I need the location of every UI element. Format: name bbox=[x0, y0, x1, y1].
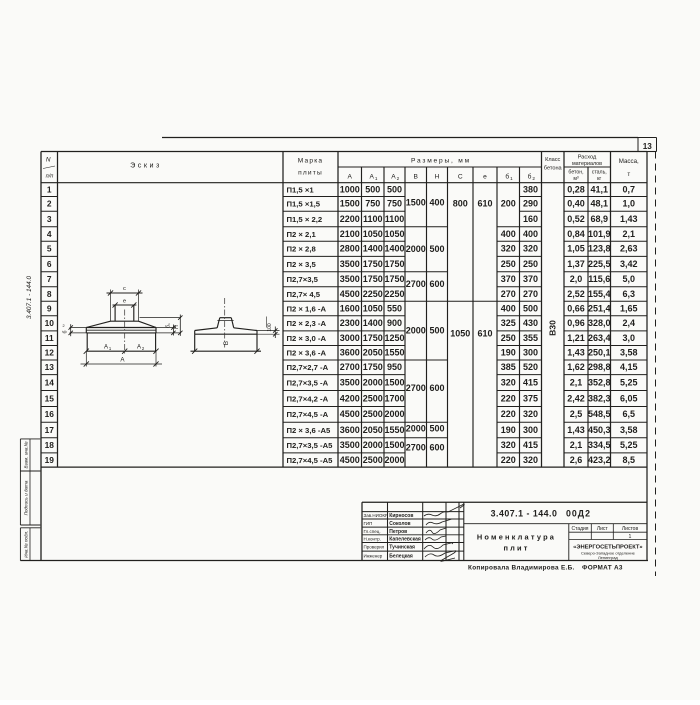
svg-text:2200: 2200 bbox=[340, 214, 360, 224]
svg-text:4500: 4500 bbox=[340, 409, 360, 419]
svg-text:100: 100 bbox=[267, 323, 273, 332]
svg-text:3,58: 3,58 bbox=[620, 425, 638, 435]
svg-text:8,5: 8,5 bbox=[622, 455, 635, 465]
svg-text:бетона: бетона bbox=[544, 166, 563, 172]
svg-text:Белецкая: Белецкая bbox=[389, 554, 413, 560]
svg-text:300: 300 bbox=[523, 348, 538, 358]
svg-text:2,1: 2,1 bbox=[622, 229, 635, 239]
svg-text:334,5: 334,5 bbox=[588, 440, 611, 450]
svg-text:270: 270 bbox=[501, 289, 516, 299]
svg-text:П2 × 3,0 -А: П2 × 3,0 -А bbox=[287, 334, 327, 343]
svg-text:5,25: 5,25 bbox=[620, 440, 638, 450]
svg-text:3500: 3500 bbox=[340, 274, 360, 284]
svg-text:Масса,: Масса, bbox=[619, 158, 639, 165]
svg-text:П2,7×4,5 -А5: П2,7×4,5 -А5 bbox=[287, 456, 334, 465]
svg-text:548,5: 548,5 bbox=[588, 409, 611, 419]
svg-text:5,25: 5,25 bbox=[620, 377, 638, 387]
svg-text:1,43: 1,43 bbox=[620, 214, 638, 224]
svg-text:1: 1 bbox=[47, 184, 52, 194]
svg-text:500: 500 bbox=[365, 184, 380, 194]
svg-text:423,2: 423,2 bbox=[588, 455, 611, 465]
svg-text:Зав.НИОКР: Зав.НИОКР bbox=[364, 513, 388, 518]
svg-text:П2 × 3,5: П2 × 3,5 bbox=[287, 260, 317, 269]
svg-text:2: 2 bbox=[47, 199, 52, 209]
svg-text:1,0: 1,0 bbox=[622, 199, 635, 209]
svg-text:П2,7×3,5 -А: П2,7×3,5 -А bbox=[287, 378, 329, 387]
svg-text:610: 610 bbox=[477, 329, 492, 339]
svg-text:18: 18 bbox=[45, 440, 55, 450]
svg-text:ГИП: ГИП bbox=[364, 521, 373, 526]
svg-text:2: 2 bbox=[532, 176, 535, 181]
svg-text:2000: 2000 bbox=[363, 440, 383, 450]
svg-text:500: 500 bbox=[429, 325, 444, 335]
svg-text:Тучинская: Тучинская bbox=[389, 545, 415, 551]
svg-text:б₁: б₁ bbox=[166, 323, 172, 328]
svg-text:сталь,: сталь, bbox=[592, 170, 607, 176]
svg-text:115,6: 115,6 bbox=[588, 274, 610, 284]
svg-text:П2 × 3,6 -А5: П2 × 3,6 -А5 bbox=[287, 426, 331, 435]
svg-text:00Д2: 00Д2 bbox=[566, 509, 591, 519]
svg-text:325: 325 bbox=[501, 318, 516, 328]
svg-text:2,5: 2,5 bbox=[570, 409, 583, 419]
svg-text:1,37: 1,37 bbox=[567, 259, 585, 269]
svg-text:кг: кг bbox=[597, 176, 601, 182]
svg-text:Взам. инв.№: Взам. инв.№ bbox=[24, 441, 29, 468]
svg-text:3.407.1 - 144.0: 3.407.1 - 144.0 bbox=[491, 509, 558, 519]
svg-text:550: 550 bbox=[387, 303, 402, 313]
svg-text:П2 × 1,6 -А: П2 × 1,6 -А bbox=[287, 304, 327, 313]
svg-text:320: 320 bbox=[523, 244, 538, 254]
svg-text:Капелевская: Капелевская bbox=[389, 537, 421, 543]
svg-text:200: 200 bbox=[501, 199, 516, 209]
svg-text:б: б bbox=[528, 173, 532, 181]
svg-text:3.407.1 - 144.0: 3.407.1 - 144.0 bbox=[26, 276, 33, 319]
svg-text:2700: 2700 bbox=[406, 442, 426, 452]
svg-text:380: 380 bbox=[523, 184, 538, 194]
svg-text:П2 × 2,3 -А: П2 × 2,3 -А bbox=[287, 319, 327, 328]
svg-text:2,63: 2,63 bbox=[620, 244, 638, 254]
svg-text:бетон,: бетон, bbox=[568, 170, 583, 176]
svg-text:Инженер: Инженер bbox=[364, 554, 383, 559]
svg-text:1750: 1750 bbox=[363, 259, 383, 269]
svg-text:П2 × 2,1: П2 × 2,1 bbox=[287, 230, 317, 239]
svg-text:А: А bbox=[370, 174, 375, 181]
svg-text:370: 370 bbox=[523, 274, 538, 284]
svg-text:2250: 2250 bbox=[363, 289, 383, 299]
svg-text:2,1: 2,1 bbox=[570, 377, 583, 387]
svg-text:П2,7×4,2 -А: П2,7×4,2 -А bbox=[287, 394, 329, 403]
svg-text:3500: 3500 bbox=[340, 259, 360, 269]
svg-text:2000: 2000 bbox=[363, 377, 383, 387]
svg-text:Подпись и дата: Подпись и дата bbox=[24, 480, 29, 515]
svg-text:320: 320 bbox=[523, 455, 538, 465]
svg-text:250: 250 bbox=[523, 259, 538, 269]
svg-text:Лист: Лист bbox=[597, 526, 609, 532]
svg-text:220: 220 bbox=[501, 393, 516, 403]
svg-text:Листов: Листов bbox=[622, 526, 639, 532]
svg-text:Гл.спец.: Гл.спец. bbox=[364, 529, 381, 534]
svg-text:1500: 1500 bbox=[406, 197, 426, 207]
svg-text:385: 385 bbox=[501, 362, 516, 372]
svg-text:2300: 2300 bbox=[340, 318, 360, 328]
svg-text:750: 750 bbox=[365, 199, 380, 209]
svg-text:6,5: 6,5 bbox=[622, 409, 635, 419]
svg-text:е: е bbox=[483, 174, 487, 181]
svg-text:7: 7 bbox=[47, 274, 52, 284]
svg-text:1400: 1400 bbox=[363, 244, 383, 254]
svg-text:600: 600 bbox=[429, 383, 444, 393]
svg-text:5,0: 5,0 bbox=[622, 274, 635, 284]
svg-text:370: 370 bbox=[501, 274, 516, 284]
svg-text:2,52: 2,52 bbox=[567, 289, 585, 299]
svg-text:123,8: 123,8 bbox=[588, 244, 611, 254]
svg-text:10: 10 bbox=[45, 318, 55, 328]
svg-text:4200: 4200 bbox=[340, 393, 360, 403]
svg-text:6,3: 6,3 bbox=[622, 289, 635, 299]
svg-text:16: 16 bbox=[45, 409, 55, 419]
svg-text:2,4: 2,4 bbox=[622, 318, 635, 328]
svg-text:П2,7×4,5 -А: П2,7×4,5 -А bbox=[287, 410, 329, 419]
svg-text:Размеры, мм: Размеры, мм bbox=[411, 158, 471, 165]
svg-text:1750: 1750 bbox=[363, 333, 383, 343]
svg-text:48,1: 48,1 bbox=[590, 199, 608, 209]
svg-text:П1,5 ×1: П1,5 ×1 bbox=[287, 185, 315, 194]
svg-text:8: 8 bbox=[47, 289, 52, 299]
svg-text:320: 320 bbox=[501, 440, 516, 450]
svg-text:3,58: 3,58 bbox=[620, 348, 638, 358]
svg-text:б: б bbox=[505, 173, 509, 181]
svg-text:Класс: Класс bbox=[545, 157, 560, 163]
svg-text:250: 250 bbox=[501, 259, 516, 269]
svg-text:Н.контр.: Н.контр. bbox=[364, 537, 381, 542]
svg-text:2,1: 2,1 bbox=[570, 440, 583, 450]
svg-text:плиты: плиты bbox=[298, 170, 323, 177]
svg-text:500: 500 bbox=[429, 424, 444, 434]
svg-text:9: 9 bbox=[47, 303, 52, 313]
svg-text:с: с bbox=[123, 286, 126, 292]
svg-text:1750: 1750 bbox=[363, 362, 383, 372]
svg-text:2500: 2500 bbox=[363, 455, 383, 465]
svg-text:3: 3 bbox=[47, 214, 52, 224]
svg-text:П1,5 × 2,2: П1,5 × 2,2 bbox=[287, 215, 323, 224]
svg-text:2500: 2500 bbox=[363, 393, 383, 403]
svg-text:220: 220 bbox=[501, 455, 516, 465]
svg-text:2050: 2050 bbox=[363, 425, 383, 435]
svg-text:1550: 1550 bbox=[384, 425, 404, 435]
svg-text:1,62: 1,62 bbox=[567, 362, 585, 372]
svg-text:400: 400 bbox=[501, 303, 516, 313]
svg-text:800: 800 bbox=[453, 199, 468, 209]
svg-text:263,4: 263,4 bbox=[588, 333, 611, 343]
svg-text:Н: Н bbox=[435, 174, 440, 181]
svg-text:13: 13 bbox=[643, 142, 653, 151]
svg-text:1750: 1750 bbox=[384, 274, 404, 284]
svg-text:3600: 3600 bbox=[340, 348, 360, 358]
svg-text:Копировала Владимирова Е.Б.: Копировала Владимирова Е.Б. bbox=[468, 564, 575, 571]
svg-text:2000: 2000 bbox=[406, 244, 426, 254]
svg-text:160: 160 bbox=[523, 214, 538, 224]
svg-text:2: 2 bbox=[62, 324, 64, 328]
svg-text:0,7: 0,7 bbox=[622, 184, 635, 194]
svg-text:П2,7×3,5 -А5: П2,7×3,5 -А5 bbox=[287, 441, 334, 450]
svg-text:355: 355 bbox=[523, 333, 538, 343]
svg-text:68,9: 68,9 bbox=[590, 214, 608, 224]
svg-text:250,1: 250,1 bbox=[588, 348, 611, 358]
svg-text:1,43: 1,43 bbox=[567, 425, 585, 435]
svg-text:0,84: 0,84 bbox=[567, 229, 585, 239]
svg-text:1000: 1000 bbox=[340, 184, 360, 194]
svg-text:4,15: 4,15 bbox=[620, 362, 638, 372]
svg-text:4: 4 bbox=[47, 229, 52, 239]
svg-text:плит: плит bbox=[503, 544, 529, 553]
svg-text:12: 12 bbox=[45, 348, 55, 358]
svg-text:0,52: 0,52 bbox=[567, 214, 585, 224]
svg-text:1: 1 bbox=[375, 176, 378, 181]
svg-text:1,21: 1,21 bbox=[567, 333, 585, 343]
svg-text:190: 190 bbox=[501, 425, 516, 435]
svg-text:2700: 2700 bbox=[406, 279, 426, 289]
svg-text:2: 2 bbox=[397, 176, 400, 181]
svg-text:600: 600 bbox=[429, 279, 444, 289]
svg-text:6,05: 6,05 bbox=[620, 393, 638, 403]
svg-text:2500: 2500 bbox=[363, 409, 383, 419]
svg-text:П2 × 2,8: П2 × 2,8 bbox=[287, 245, 317, 254]
svg-text:1600: 1600 bbox=[340, 303, 360, 313]
svg-text:300: 300 bbox=[523, 425, 538, 435]
svg-text:400: 400 bbox=[429, 197, 444, 207]
svg-text:т: т bbox=[627, 171, 630, 178]
svg-text:Расход: Расход bbox=[578, 155, 597, 161]
svg-text:500: 500 bbox=[523, 303, 538, 313]
svg-text:1400: 1400 bbox=[363, 318, 383, 328]
svg-text:В: В bbox=[223, 341, 230, 345]
svg-text:14: 14 bbox=[45, 377, 55, 387]
svg-text:450,3: 450,3 bbox=[588, 425, 611, 435]
svg-text:19: 19 bbox=[45, 455, 55, 465]
svg-text:Ленинград: Ленинград bbox=[598, 555, 618, 560]
svg-text:270: 270 bbox=[523, 289, 538, 299]
svg-text:П2,7× 4,5: П2,7× 4,5 bbox=[287, 290, 321, 299]
svg-text:П2,7×3,5: П2,7×3,5 bbox=[287, 275, 319, 284]
svg-text:Проверил: Проверил bbox=[364, 545, 385, 550]
svg-text:1250: 1250 bbox=[384, 333, 404, 343]
svg-text:5: 5 bbox=[47, 244, 52, 254]
svg-text:1500: 1500 bbox=[384, 377, 404, 387]
svg-text:А: А bbox=[348, 174, 353, 181]
svg-text:6: 6 bbox=[47, 259, 52, 269]
svg-text:1400: 1400 bbox=[384, 244, 404, 254]
svg-text:1100: 1100 bbox=[363, 214, 383, 224]
svg-text:2,0: 2,0 bbox=[570, 274, 583, 284]
svg-text:В30: В30 bbox=[547, 320, 557, 336]
svg-text:Номенклатура: Номенклатура bbox=[477, 533, 556, 542]
svg-text:2250: 2250 bbox=[384, 289, 404, 299]
svg-text:250: 250 bbox=[501, 333, 516, 343]
svg-text:3,42: 3,42 bbox=[620, 259, 638, 269]
svg-text:м³: м³ bbox=[573, 176, 579, 182]
svg-text:В: В bbox=[414, 174, 419, 181]
svg-text:320: 320 bbox=[501, 377, 516, 387]
svg-text:155,4: 155,4 bbox=[588, 289, 611, 299]
svg-text:Инв.№ подл.: Инв.№ подл. bbox=[24, 531, 29, 558]
svg-text:2000: 2000 bbox=[384, 409, 404, 419]
svg-text:Соколов: Соколов bbox=[389, 521, 410, 527]
svg-text:1500: 1500 bbox=[384, 440, 404, 450]
svg-text:415: 415 bbox=[523, 440, 538, 450]
svg-text:290: 290 bbox=[523, 199, 538, 209]
svg-text:430: 430 bbox=[523, 318, 538, 328]
svg-text:2100: 2100 bbox=[340, 229, 360, 239]
svg-text:101,9: 101,9 bbox=[588, 229, 611, 239]
svg-text:15: 15 bbox=[45, 393, 55, 403]
svg-text:320: 320 bbox=[501, 244, 516, 254]
svg-text:900: 900 bbox=[387, 318, 402, 328]
svg-text:1,05: 1,05 bbox=[567, 244, 585, 254]
svg-text:190: 190 bbox=[501, 348, 516, 358]
svg-text:2700: 2700 bbox=[340, 362, 360, 372]
svg-text:352,8: 352,8 bbox=[588, 377, 611, 387]
svg-text:2000: 2000 bbox=[406, 424, 426, 434]
svg-text:1050: 1050 bbox=[363, 303, 383, 313]
svg-text:0,28: 0,28 bbox=[567, 184, 585, 194]
svg-text:б: б bbox=[63, 330, 69, 333]
svg-text:41,1: 41,1 bbox=[590, 184, 608, 194]
svg-text:П2 × 3,6 -А: П2 × 3,6 -А bbox=[287, 349, 327, 358]
svg-text:Стадия: Стадия bbox=[571, 526, 588, 532]
svg-text:1100: 1100 bbox=[385, 214, 405, 224]
svg-text:251,4: 251,4 bbox=[588, 303, 611, 313]
svg-text:1: 1 bbox=[510, 176, 513, 181]
svg-text:375: 375 bbox=[523, 393, 538, 403]
svg-text:1,43: 1,43 bbox=[567, 348, 585, 358]
svg-text:0,96: 0,96 bbox=[567, 318, 585, 328]
svg-text:520: 520 bbox=[523, 362, 538, 372]
svg-text:ФОРМАТ А3: ФОРМАТ А3 bbox=[582, 564, 623, 571]
svg-text:500: 500 bbox=[387, 184, 402, 194]
svg-text:е: е bbox=[123, 298, 126, 304]
svg-text:0,40: 0,40 bbox=[567, 199, 585, 209]
svg-text:400: 400 bbox=[501, 229, 516, 239]
svg-text:320: 320 bbox=[523, 409, 538, 419]
svg-text:220: 220 bbox=[501, 409, 516, 419]
svg-text:950: 950 bbox=[387, 362, 402, 372]
svg-text:1750: 1750 bbox=[363, 274, 383, 284]
svg-text:1050: 1050 bbox=[363, 229, 383, 239]
svg-text:С: С bbox=[458, 174, 463, 181]
svg-text:600: 600 bbox=[429, 442, 444, 452]
svg-text:1050: 1050 bbox=[384, 229, 404, 239]
svg-text:А: А bbox=[137, 345, 141, 351]
svg-text:1050: 1050 bbox=[450, 329, 470, 339]
svg-text:4500: 4500 bbox=[340, 289, 360, 299]
svg-text:Петров: Петров bbox=[389, 529, 407, 535]
svg-text:П2,7×2,7 -А: П2,7×2,7 -А bbox=[287, 363, 329, 372]
svg-text:Н: Н bbox=[174, 325, 180, 329]
svg-text:П1,5 ×1,5: П1,5 ×1,5 bbox=[287, 200, 321, 209]
svg-text:А: А bbox=[391, 174, 396, 181]
svg-text:0,66: 0,66 bbox=[567, 303, 585, 313]
svg-text:3500: 3500 bbox=[340, 377, 360, 387]
svg-text:Эскиз: Эскиз bbox=[130, 161, 162, 170]
svg-text:А: А bbox=[104, 345, 108, 351]
svg-text:материалов: материалов bbox=[572, 161, 602, 167]
svg-text:2700: 2700 bbox=[406, 383, 426, 393]
svg-text:3,0: 3,0 bbox=[622, 333, 635, 343]
svg-text:382,3: 382,3 bbox=[588, 393, 611, 403]
svg-text:3600: 3600 bbox=[340, 425, 360, 435]
svg-text:Марка: Марка bbox=[298, 158, 324, 165]
svg-text:3500: 3500 bbox=[340, 440, 360, 450]
svg-text:1: 1 bbox=[629, 534, 632, 540]
svg-text:11: 11 bbox=[45, 333, 54, 343]
svg-text:610: 610 bbox=[477, 199, 492, 209]
svg-text:п/п: п/п bbox=[46, 174, 54, 180]
svg-text:2,6: 2,6 bbox=[570, 455, 583, 465]
svg-text:2,42: 2,42 bbox=[567, 393, 585, 403]
svg-text:298,8: 298,8 bbox=[588, 362, 611, 372]
svg-text:1700: 1700 bbox=[384, 393, 404, 403]
svg-text:3000: 3000 bbox=[340, 333, 360, 343]
svg-text:4500: 4500 bbox=[340, 455, 360, 465]
svg-text:1500: 1500 bbox=[340, 199, 360, 209]
svg-text:500: 500 bbox=[429, 244, 444, 254]
svg-text:2050: 2050 bbox=[363, 348, 383, 358]
svg-text:225,5: 225,5 bbox=[588, 259, 611, 269]
svg-text:750: 750 bbox=[387, 199, 402, 209]
svg-text:17: 17 bbox=[45, 425, 55, 435]
svg-text:415: 415 bbox=[523, 377, 538, 387]
svg-text:1,65: 1,65 bbox=[620, 303, 638, 313]
svg-text:2000: 2000 bbox=[384, 455, 404, 465]
svg-text:2800: 2800 bbox=[340, 244, 360, 254]
svg-text:N: N bbox=[46, 157, 51, 164]
svg-text:13: 13 bbox=[45, 362, 55, 372]
svg-text:328,0: 328,0 bbox=[588, 318, 611, 328]
svg-text:Кирносов: Кирносов bbox=[389, 513, 413, 519]
svg-text:400: 400 bbox=[523, 229, 538, 239]
svg-text:1550: 1550 bbox=[384, 348, 404, 358]
svg-text:2000: 2000 bbox=[406, 325, 426, 335]
svg-text:1750: 1750 bbox=[384, 259, 404, 269]
